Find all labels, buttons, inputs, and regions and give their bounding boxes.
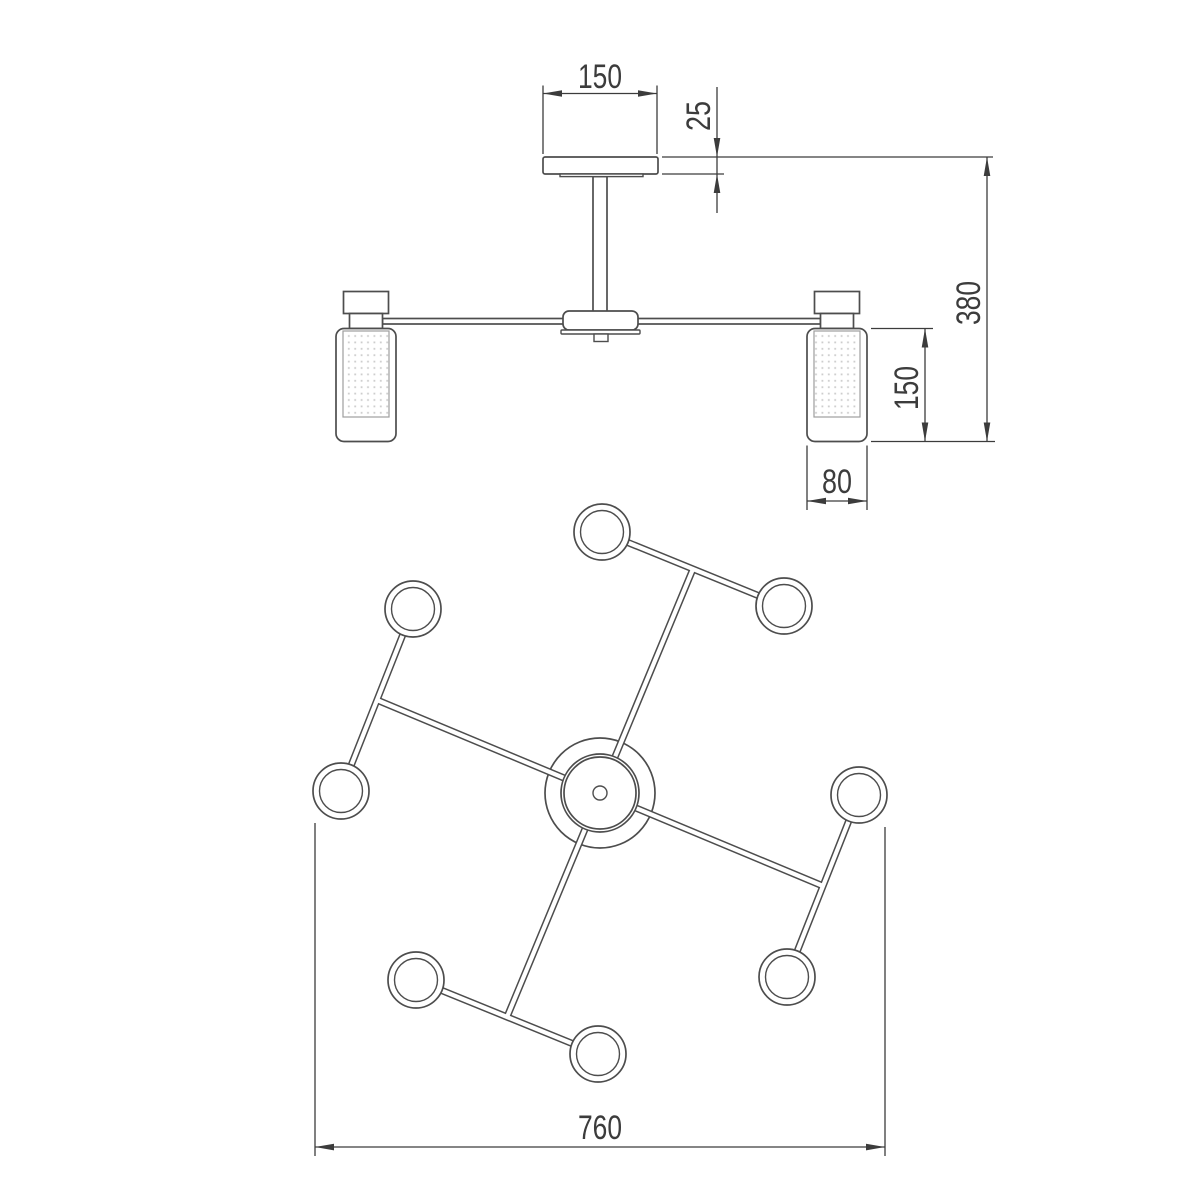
lamp-shade-inner	[577, 1033, 620, 1076]
arrowhead-right	[638, 90, 657, 97]
lamp-shade-inner	[763, 585, 806, 628]
hub-stud	[594, 334, 608, 342]
lamp-left	[336, 292, 396, 442]
drawing-page: 150 25 380 150 80	[0, 0, 1200, 1200]
arrowhead-top	[984, 157, 991, 176]
lamp-left-socket-cap	[344, 292, 389, 314]
lamp-circle-right	[831, 767, 887, 823]
dim-canopy-width-label: 150	[578, 58, 622, 96]
canopy-lip	[560, 174, 643, 177]
lamp-circle-bottom-left	[388, 952, 444, 1008]
lamp-right-socket-cap	[815, 292, 860, 314]
lamp-shade-inner	[581, 511, 624, 554]
lamp-shade-inner	[395, 959, 438, 1002]
arrowhead-bottom	[984, 423, 991, 442]
hub-center-hole	[593, 786, 607, 800]
lamp-right	[807, 292, 867, 442]
lamp-circle-top-right	[756, 578, 812, 634]
arrowhead-bottom	[922, 423, 929, 442]
arrowhead-left	[543, 90, 562, 97]
dim-overall-height-label: 380	[950, 281, 988, 325]
dimension-shade-height: 150	[871, 329, 933, 442]
technical-drawing: 150 25 380 150 80	[0, 0, 1200, 1200]
lamp-left-neck	[350, 314, 383, 329]
stem	[593, 177, 607, 312]
lamp-circle-top	[574, 504, 630, 560]
arrowhead-top	[714, 138, 721, 157]
dim-overall-width-label: 760	[578, 1109, 622, 1147]
hub-body	[563, 311, 638, 330]
ceiling-canopy	[543, 157, 658, 174]
arrowhead-bottom	[714, 174, 721, 193]
dim-canopy-thickness-label: 25	[680, 101, 718, 131]
arrowhead-right	[866, 1144, 885, 1151]
lamp-shade-inner	[320, 770, 363, 813]
lamp-circle-left	[313, 763, 369, 819]
dimension-canopy-thickness: 25	[662, 87, 993, 213]
arrowhead-left	[315, 1144, 334, 1151]
lamp-shade-inner	[766, 956, 809, 999]
arm-right-side	[638, 319, 821, 325]
arrowhead-top	[922, 329, 929, 348]
lamp-shade-inner	[392, 588, 435, 631]
lamp-circle-bottom-right	[759, 949, 815, 1005]
dim-shade-height-label: 150	[888, 366, 926, 410]
side-view	[336, 157, 867, 442]
dimension-canopy-width: 150	[543, 58, 657, 154]
dimension-shade-width: 80	[807, 446, 867, 511]
dim-shade-width-label: 80	[822, 463, 852, 501]
lamp-right-diffuser	[814, 331, 860, 417]
lamp-shade-inner	[838, 774, 881, 817]
lamp-circle-bottom	[570, 1026, 626, 1082]
lamp-right-neck	[821, 314, 854, 329]
lamp-left-diffuser	[343, 331, 389, 417]
top-view	[313, 504, 887, 1082]
lamp-circle-top-left	[385, 581, 441, 637]
arm-left-side	[383, 319, 564, 325]
